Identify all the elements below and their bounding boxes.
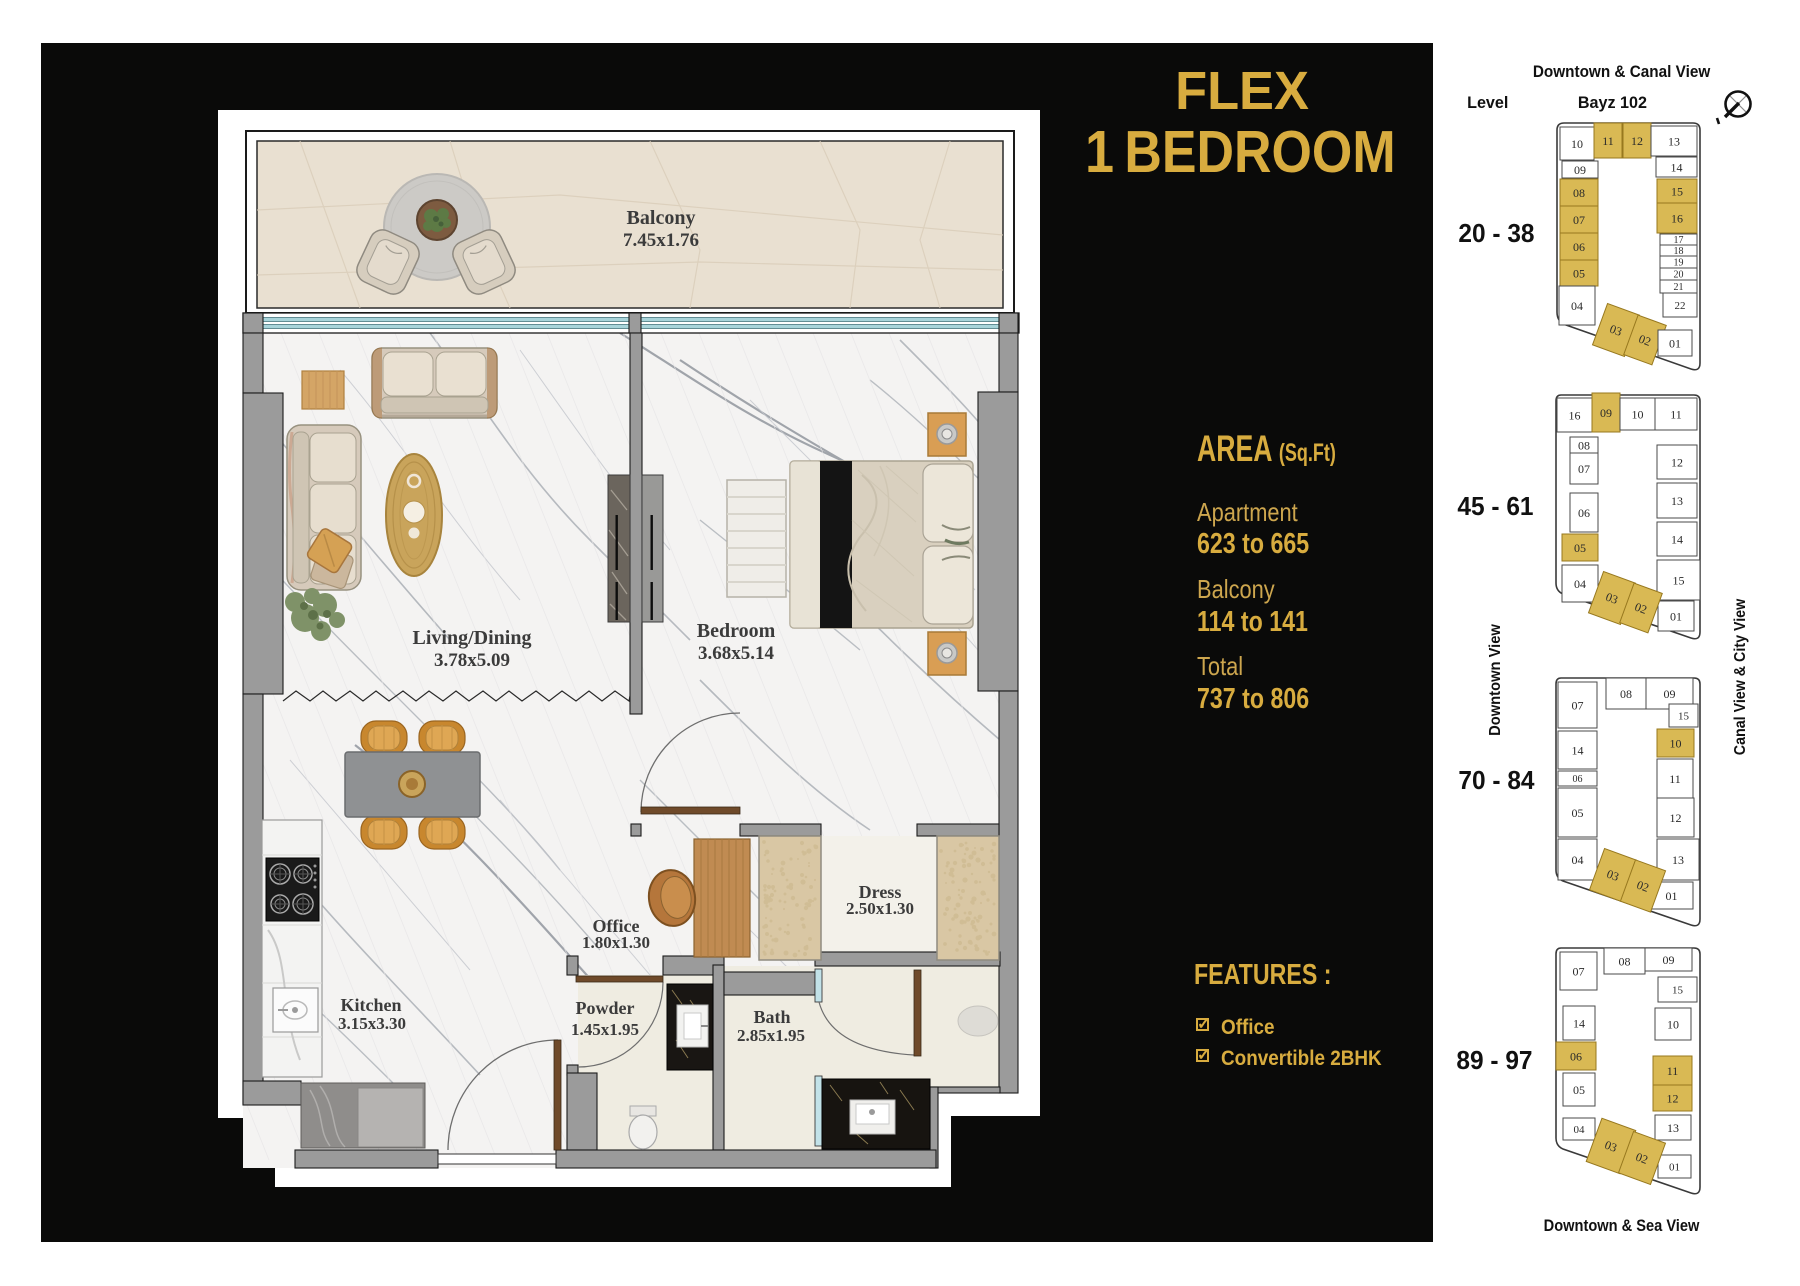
svg-text:Bedroom: Bedroom <box>697 620 776 642</box>
svg-text:05: 05 <box>1572 806 1584 820</box>
svg-text:09: 09 <box>1663 953 1675 967</box>
svg-text:2.50x1.30: 2.50x1.30 <box>846 899 914 918</box>
svg-text:01: 01 <box>1670 609 1682 623</box>
svg-text:10: 10 <box>1571 137 1583 151</box>
svg-text:12: 12 <box>1670 811 1682 825</box>
svg-text:05: 05 <box>1574 541 1586 555</box>
svg-text:01: 01 <box>1669 336 1681 350</box>
svg-text:Powder: Powder <box>576 998 635 1018</box>
svg-text:09: 09 <box>1664 687 1676 701</box>
svg-text:3.68x5.14: 3.68x5.14 <box>698 643 775 664</box>
svg-text:15: 15 <box>1678 710 1690 722</box>
svg-text:04: 04 <box>1574 577 1586 591</box>
svg-text:Balcony: Balcony <box>627 207 696 229</box>
svg-text:08: 08 <box>1573 186 1585 200</box>
svg-text:21: 21 <box>1674 282 1684 293</box>
svg-text:15: 15 <box>1671 184 1683 198</box>
svg-text:04: 04 <box>1574 1124 1586 1136</box>
svg-text:19: 19 <box>1674 258 1684 269</box>
svg-text:10: 10 <box>1632 407 1644 421</box>
svg-text:13: 13 <box>1672 853 1684 867</box>
svg-text:3.78x5.09: 3.78x5.09 <box>434 650 510 671</box>
svg-text:12: 12 <box>1667 1091 1679 1105</box>
svg-text:08: 08 <box>1619 954 1631 968</box>
svg-text:Living/Dining: Living/Dining <box>413 627 532 649</box>
svg-text:11: 11 <box>1602 134 1614 148</box>
svg-text:12: 12 <box>1631 134 1643 148</box>
svg-text:1.45x1.95: 1.45x1.95 <box>571 1020 639 1039</box>
svg-text:22: 22 <box>1675 300 1686 312</box>
svg-text:09: 09 <box>1600 406 1612 420</box>
svg-text:16: 16 <box>1569 408 1581 422</box>
svg-text:20: 20 <box>1674 270 1684 281</box>
svg-text:14: 14 <box>1671 532 1683 546</box>
svg-text:13: 13 <box>1667 1121 1679 1135</box>
svg-text:07: 07 <box>1578 462 1590 476</box>
svg-text:Bath: Bath <box>753 1007 790 1027</box>
svg-text:07: 07 <box>1573 964 1585 978</box>
svg-text:05: 05 <box>1573 266 1585 280</box>
svg-text:Kitchen: Kitchen <box>341 995 402 1015</box>
svg-text:11: 11 <box>1670 407 1682 421</box>
svg-text:09: 09 <box>1574 163 1586 177</box>
svg-text:1.80x1.30: 1.80x1.30 <box>582 933 650 952</box>
svg-text:15: 15 <box>1673 573 1685 587</box>
svg-text:15: 15 <box>1672 984 1684 996</box>
svg-text:04: 04 <box>1572 853 1584 867</box>
svg-text:01: 01 <box>1669 1161 1680 1173</box>
svg-text:07: 07 <box>1572 698 1584 712</box>
svg-text:10: 10 <box>1670 736 1682 750</box>
svg-text:7.45x1.76: 7.45x1.76 <box>623 230 699 251</box>
svg-text:3.15x3.30: 3.15x3.30 <box>338 1014 406 1033</box>
svg-text:01: 01 <box>1666 889 1678 903</box>
svg-text:10: 10 <box>1667 1017 1679 1031</box>
svg-text:12: 12 <box>1671 455 1683 469</box>
svg-text:08: 08 <box>1620 687 1632 701</box>
svg-text:14: 14 <box>1573 1016 1585 1030</box>
svg-text:08: 08 <box>1578 438 1590 452</box>
svg-text:04: 04 <box>1571 299 1583 313</box>
svg-text:13: 13 <box>1668 134 1680 148</box>
svg-text:2.85x1.95: 2.85x1.95 <box>737 1026 805 1045</box>
svg-text:14: 14 <box>1671 160 1683 174</box>
